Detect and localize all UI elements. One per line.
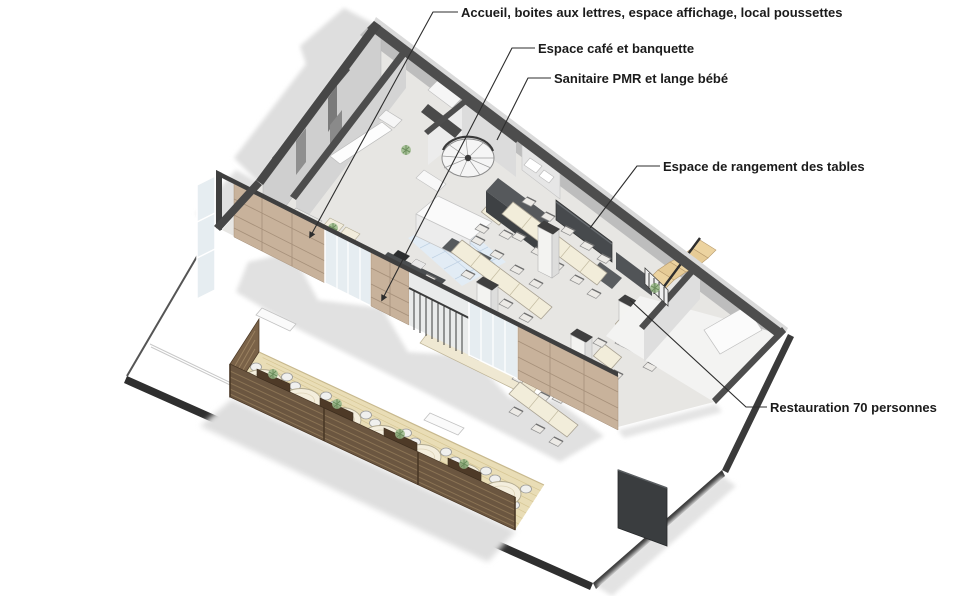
annotation-sanitaire: Sanitaire PMR et lange bébé (554, 71, 728, 86)
architectural-diagram: Accueil, boites aux lettres, espace affi… (0, 0, 966, 596)
plant-icon (395, 429, 405, 439)
annotation-accueil: Accueil, boites aux lettres, espace affi… (461, 5, 842, 20)
plant-icon (401, 145, 411, 155)
plant-icon (332, 399, 342, 409)
plant-icon (650, 283, 660, 293)
annotation-cafe: Espace café et banquette (538, 41, 694, 56)
plant-icon (268, 369, 278, 379)
corner-glazing (197, 176, 215, 299)
plant-icon (459, 459, 469, 469)
annotation-rangement: Espace de rangement des tables (663, 159, 865, 174)
annotation-restauration: Restauration 70 personnes (770, 400, 937, 415)
floor-plan-drawing: Accueil, boites aux lettres, espace affi… (0, 0, 966, 596)
